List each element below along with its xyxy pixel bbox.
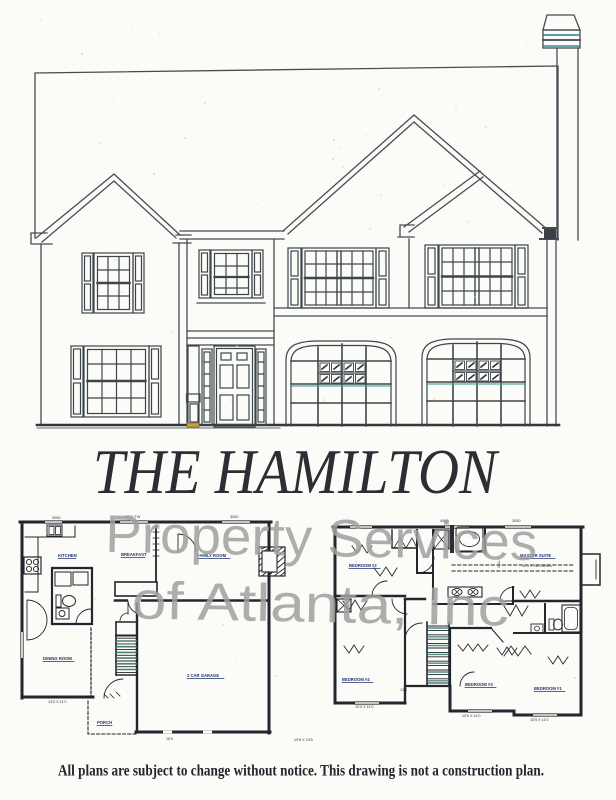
svg-text:2 CAR GARAGE: 2 CAR GARAGE (187, 673, 219, 678)
svg-text:KITCHEN: KITCHEN (58, 553, 77, 558)
svg-text:BEDROOM #4: BEDROOM #4 (342, 677, 370, 682)
svg-text:3050: 3050 (52, 516, 60, 520)
svg-text:of Atlanta, Inc: of Atlanta, Inc (131, 571, 509, 637)
svg-text:16'0: 16'0 (166, 737, 173, 741)
svg-text:DINING ROOM: DINING ROOM (43, 656, 72, 661)
svg-text:THE HAMILTON: THE HAMILTON (93, 436, 500, 507)
svg-text:BEDROOM #3: BEDROOM #3 (465, 682, 493, 687)
svg-text:10'0 X 11'0: 10'0 X 11'0 (462, 714, 480, 718)
svg-text:Property Services: Property Services (105, 505, 538, 572)
svg-text:13'4: 13'4 (400, 688, 407, 692)
svg-text:19'8 X 19'5: 19'8 X 19'5 (294, 738, 313, 742)
svg-text:All plans are subject to chang: All plans are subject to change without … (58, 763, 544, 780)
svg-text:10'5 X 11'0: 10'5 X 11'0 (530, 718, 548, 722)
svg-text:BEDROOM #1: BEDROOM #1 (534, 686, 562, 691)
svg-text:PORCH: PORCH (97, 720, 112, 725)
svg-text:10'0 X 11'0: 10'0 X 11'0 (355, 705, 373, 709)
svg-text:14'0 X 11'0: 14'0 X 11'0 (48, 700, 66, 704)
